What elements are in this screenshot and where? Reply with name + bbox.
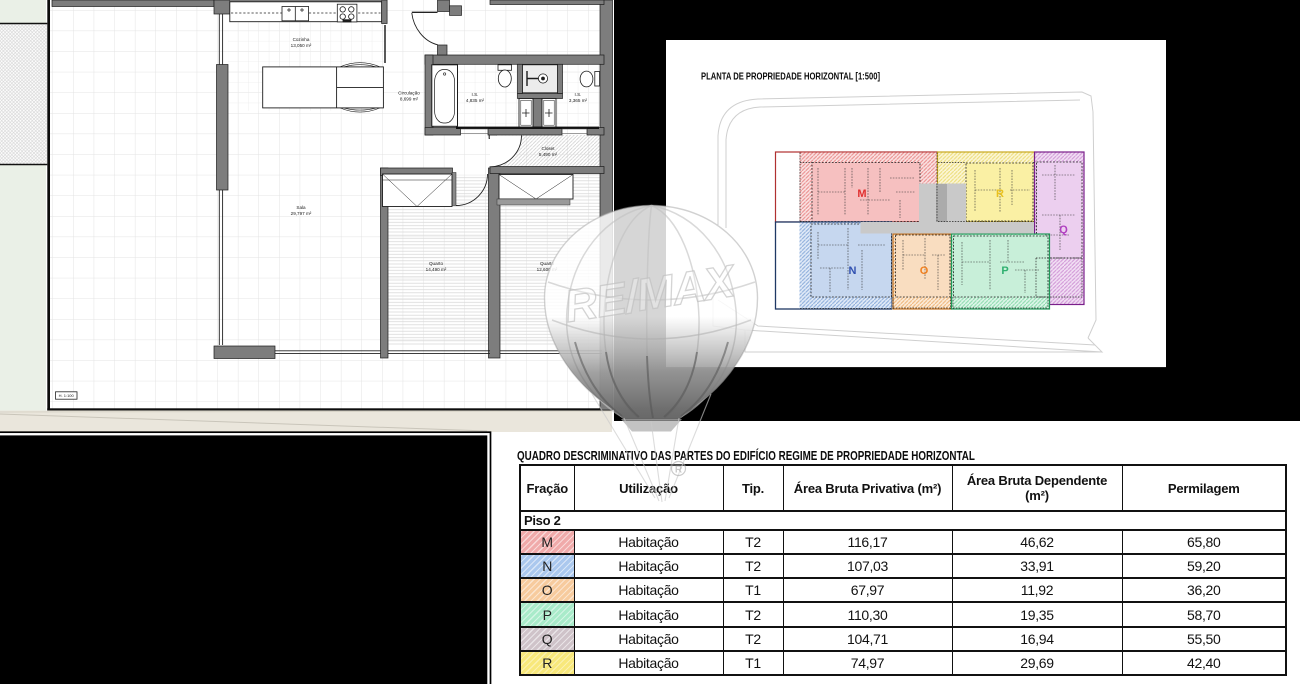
svg-text:R: R bbox=[675, 465, 683, 476]
